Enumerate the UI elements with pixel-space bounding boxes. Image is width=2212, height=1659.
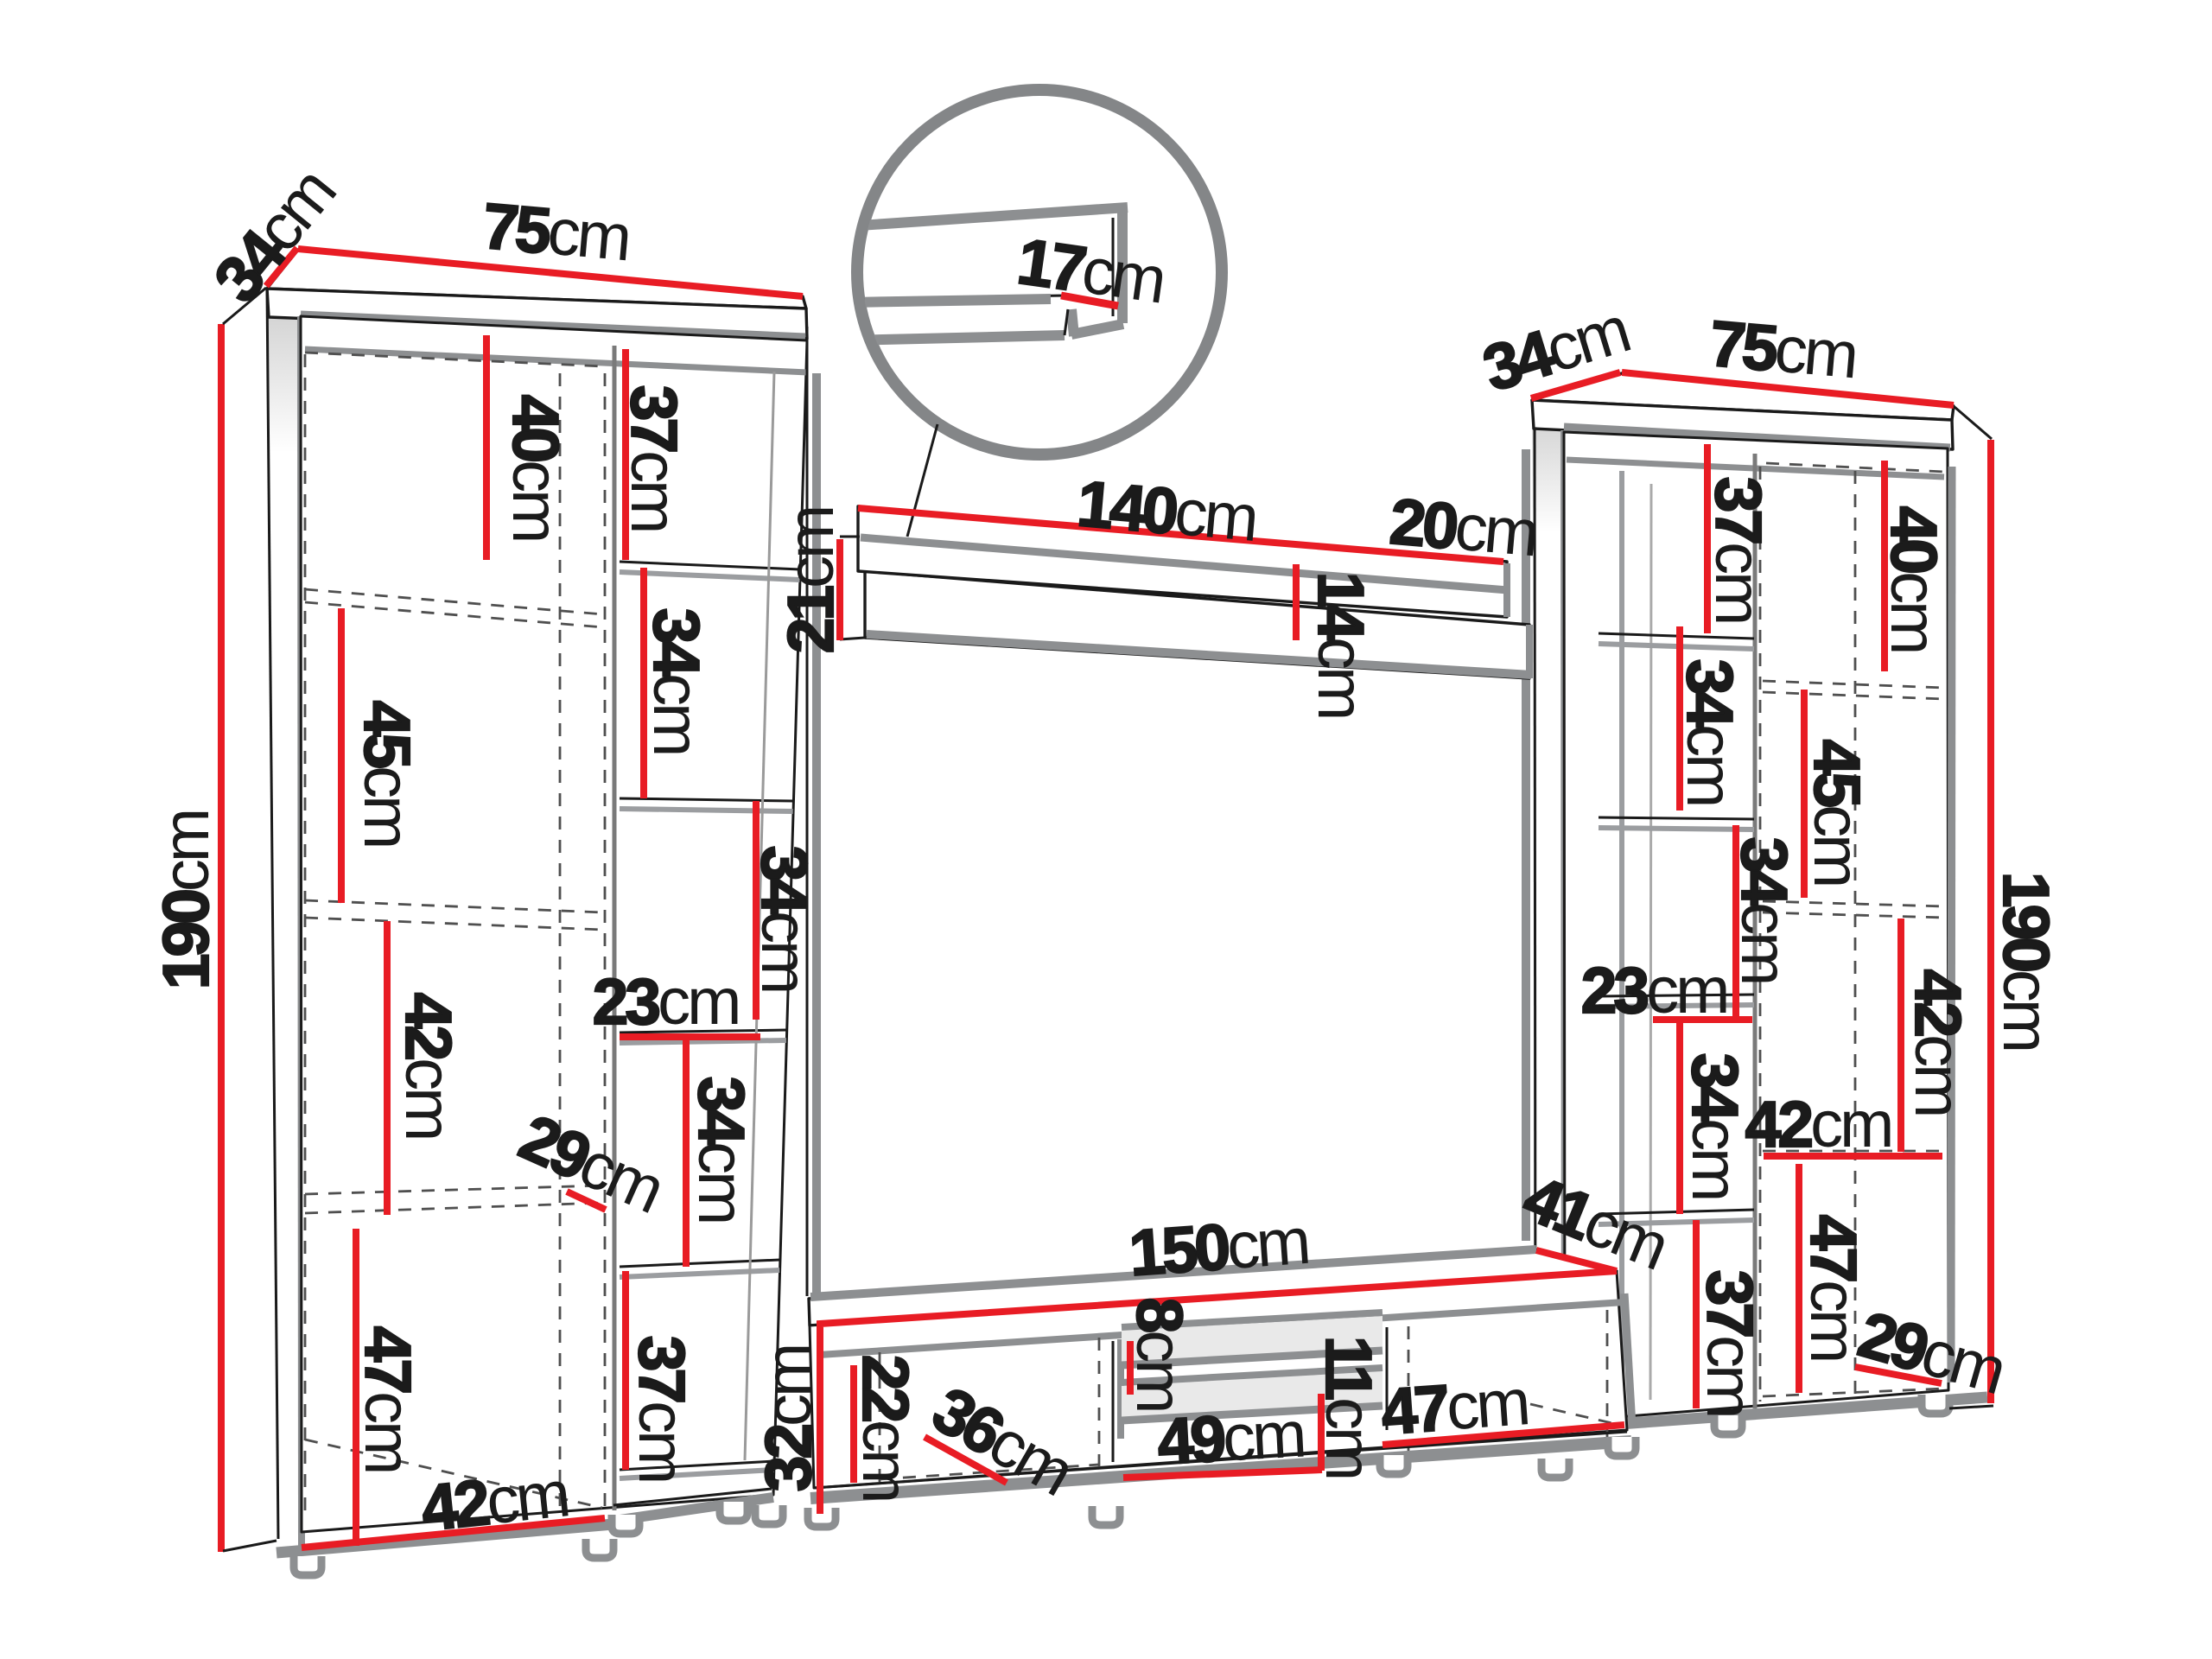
svg-text:34cm: 34cm xyxy=(747,846,821,992)
svg-text:40cm: 40cm xyxy=(1877,506,1950,652)
svg-text:42cm: 42cm xyxy=(418,1457,571,1545)
svg-text:37cm: 37cm xyxy=(625,1336,698,1482)
svg-text:21cm: 21cm xyxy=(774,508,848,654)
svg-text:34cm: 34cm xyxy=(1678,1053,1751,1199)
svg-text:34cm: 34cm xyxy=(1673,659,1746,805)
svg-text:23cm: 23cm xyxy=(1581,954,1727,1027)
svg-text:37cm: 37cm xyxy=(1693,1270,1766,1416)
svg-text:42cm: 42cm xyxy=(391,993,465,1139)
svg-text:37cm: 37cm xyxy=(1701,477,1775,623)
svg-text:47cm: 47cm xyxy=(351,1326,424,1472)
svg-text:75cm: 75cm xyxy=(480,189,632,275)
svg-text:75cm: 75cm xyxy=(1707,307,1859,392)
svg-text:47cm: 47cm xyxy=(1379,1365,1529,1449)
svg-text:42cm: 42cm xyxy=(1901,969,1974,1116)
svg-text:42cm: 42cm xyxy=(1745,1088,1891,1161)
svg-text:22cm: 22cm xyxy=(849,1355,922,1501)
svg-text:37cm: 37cm xyxy=(617,385,690,531)
svg-text:34cm: 34cm xyxy=(1727,837,1801,983)
svg-text:11cm: 11cm xyxy=(1312,1336,1385,1478)
svg-text:20cm: 20cm xyxy=(1387,485,1539,570)
svg-text:14cm: 14cm xyxy=(1304,572,1377,718)
svg-text:40cm: 40cm xyxy=(499,395,572,541)
svg-text:190cm: 190cm xyxy=(149,811,223,989)
svg-text:45cm: 45cm xyxy=(350,701,423,847)
svg-text:190cm: 190cm xyxy=(1989,872,2063,1050)
svg-text:150cm: 150cm xyxy=(1127,1205,1310,1290)
svg-text:34cm: 34cm xyxy=(639,608,713,754)
svg-text:32cm: 32cm xyxy=(752,1346,825,1492)
svg-text:34cm: 34cm xyxy=(684,1077,758,1223)
svg-text:8cm: 8cm xyxy=(1122,1297,1196,1410)
svg-text:45cm: 45cm xyxy=(1800,740,1873,886)
svg-text:23cm: 23cm xyxy=(593,965,739,1039)
svg-text:49cm: 49cm xyxy=(1156,1398,1306,1479)
